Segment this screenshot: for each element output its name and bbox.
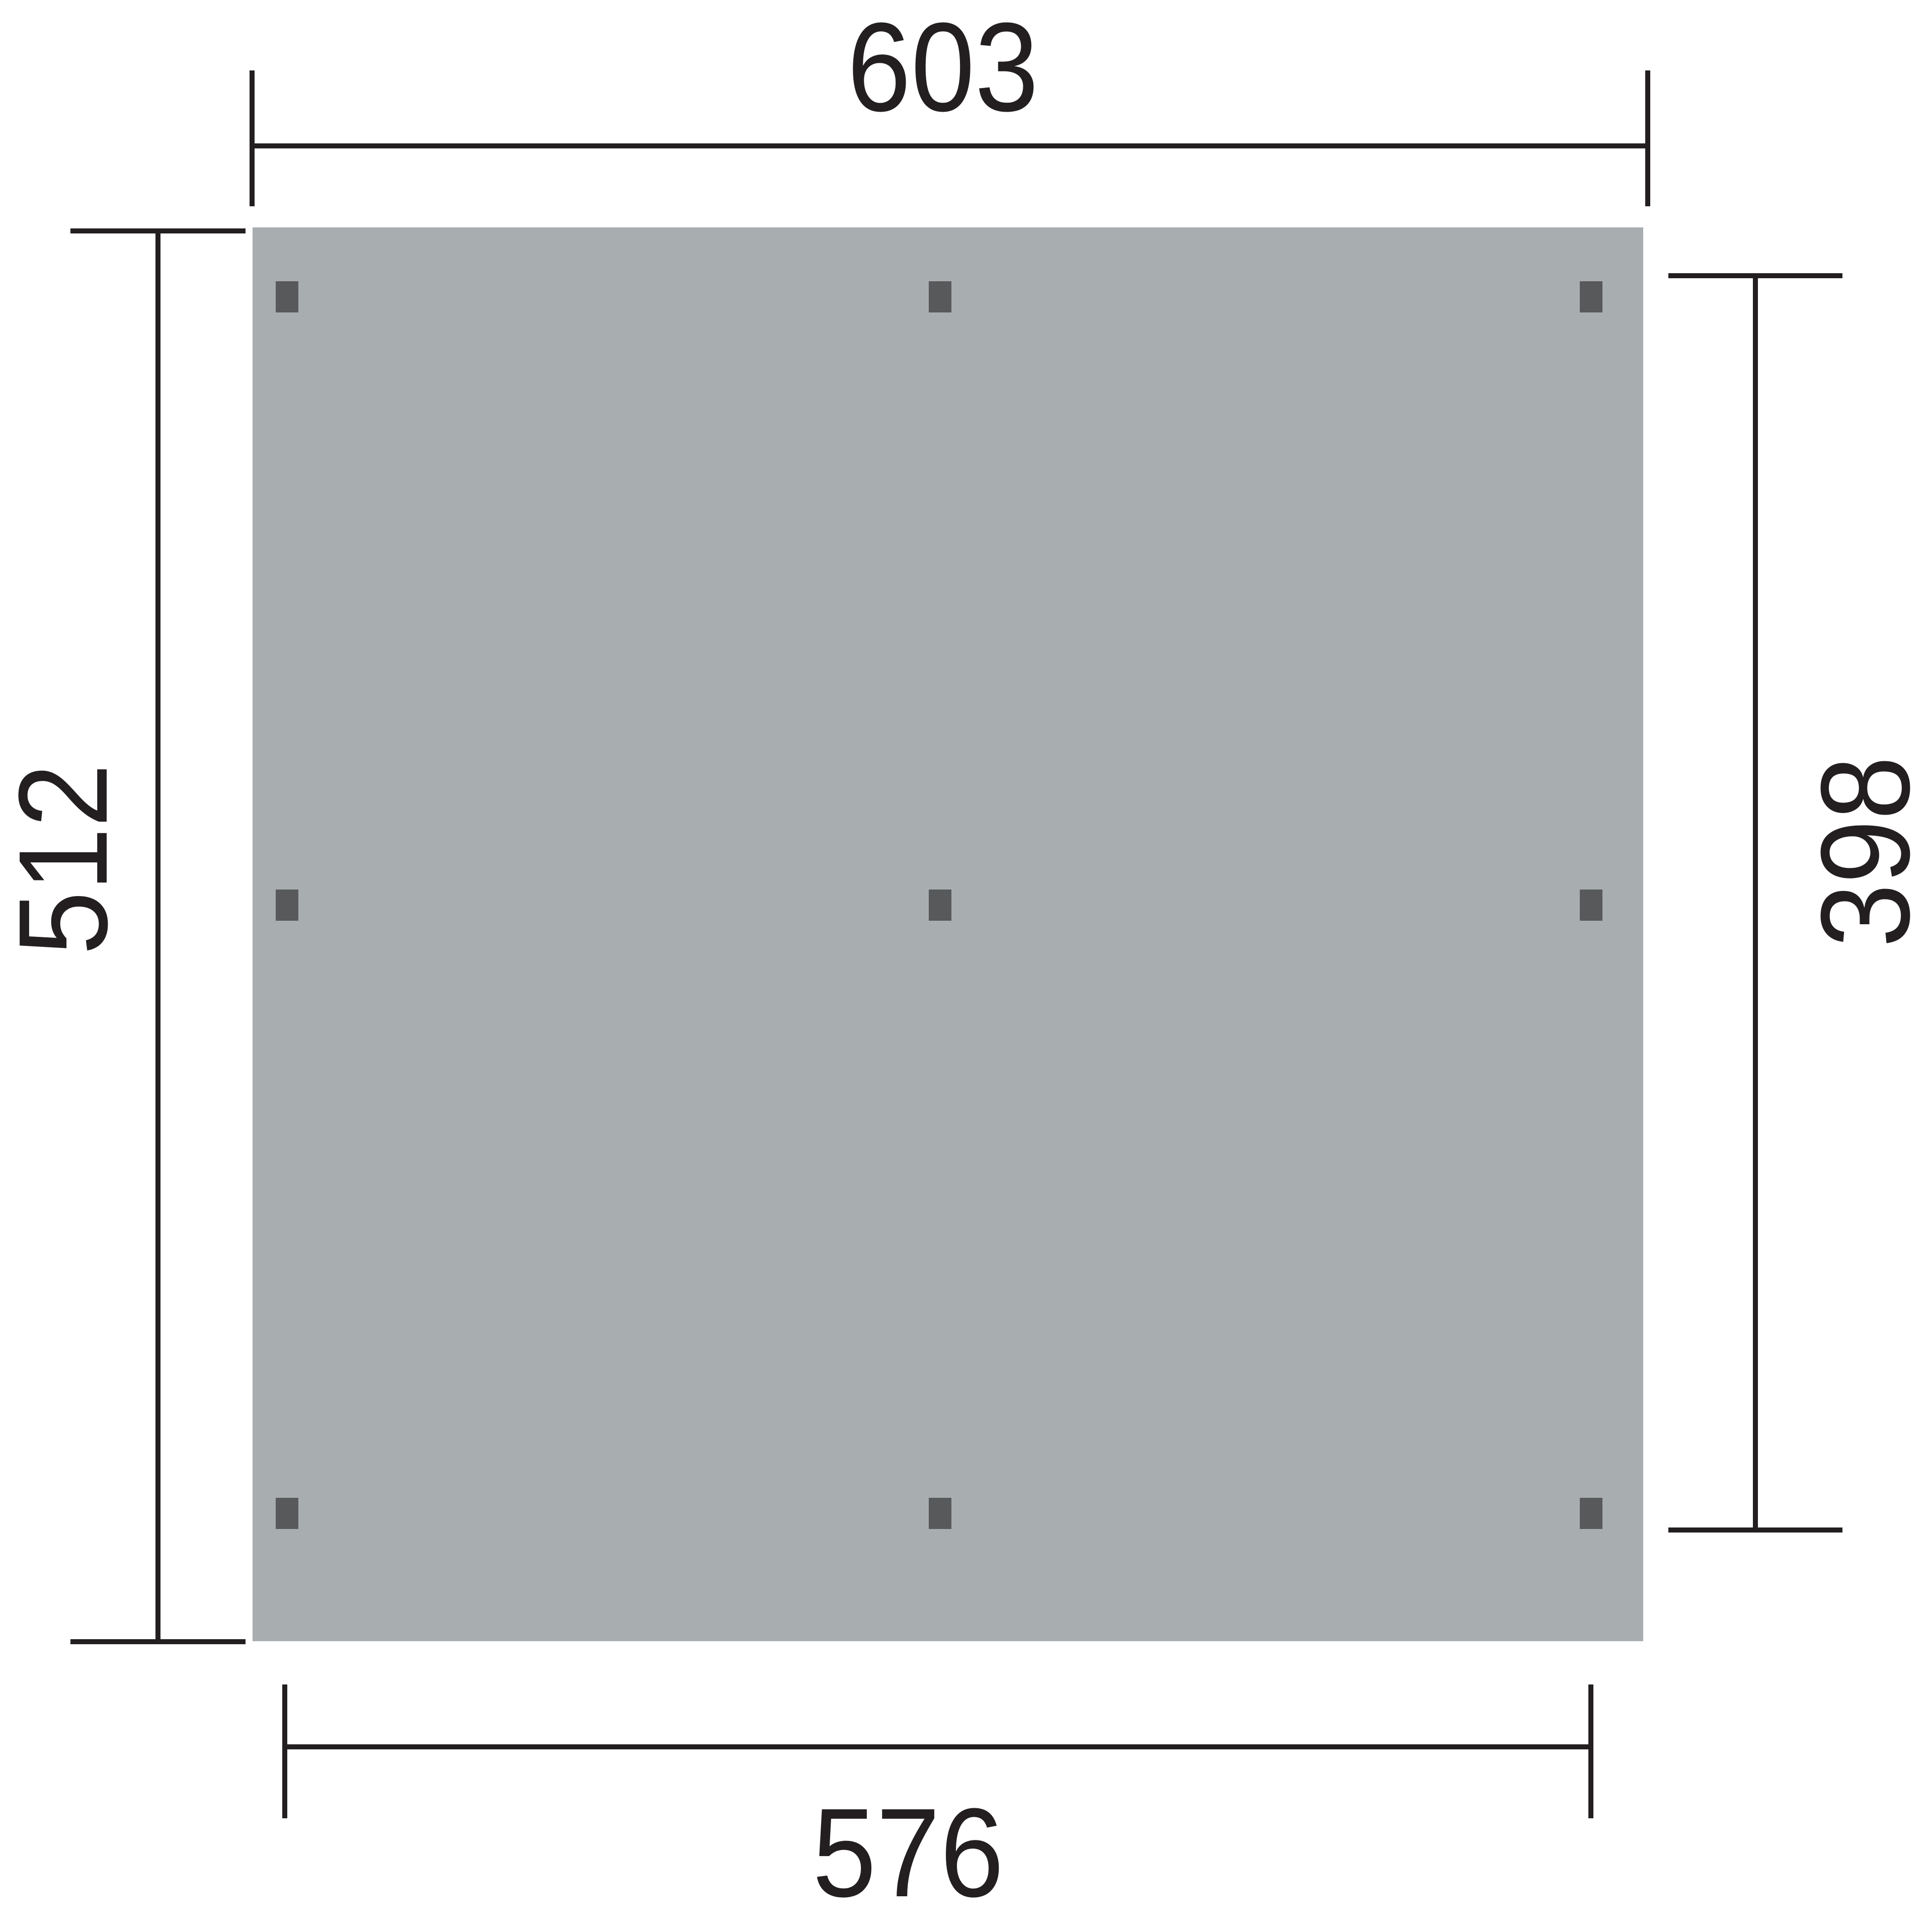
svg-text:603: 603 [847, 0, 1039, 137]
svg-text:512: 512 [0, 764, 133, 955]
svg-text:398: 398 [1795, 756, 1932, 948]
svg-text:576: 576 [813, 1782, 1004, 1923]
